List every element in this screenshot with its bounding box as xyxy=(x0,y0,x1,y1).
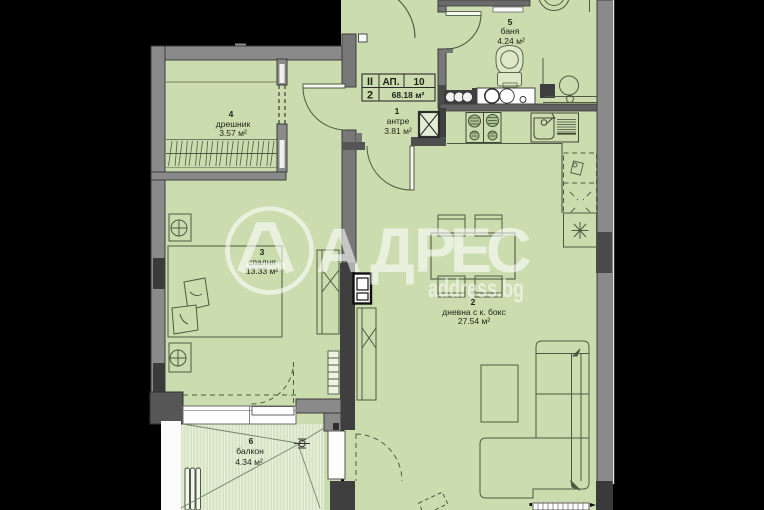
svg-text:10: 10 xyxy=(413,77,425,88)
svg-text:3.81 м²: 3.81 м² xyxy=(384,126,412,136)
svg-text:68.18 м²: 68.18 м² xyxy=(392,90,425,100)
svg-text:II: II xyxy=(367,76,373,88)
svg-text:балкон: балкон xyxy=(236,446,264,456)
svg-text:4.34 м²: 4.34 м² xyxy=(235,457,263,467)
svg-text:АП.: АП. xyxy=(382,77,399,88)
svg-text:антре: антре xyxy=(387,116,410,126)
svg-text:3: 3 xyxy=(260,247,265,257)
svg-text:3.57 м²: 3.57 м² xyxy=(219,128,247,138)
svg-text:1: 1 xyxy=(395,106,400,116)
svg-text:баня: баня xyxy=(501,26,520,36)
svg-text:27.54 м²: 27.54 м² xyxy=(458,316,490,326)
svg-text:address.bg: address.bg xyxy=(428,273,524,303)
svg-text:2: 2 xyxy=(367,90,373,102)
svg-text:4.24 м²: 4.24 м² xyxy=(497,36,525,46)
svg-text:6: 6 xyxy=(249,436,254,446)
svg-text:4: 4 xyxy=(229,109,234,119)
